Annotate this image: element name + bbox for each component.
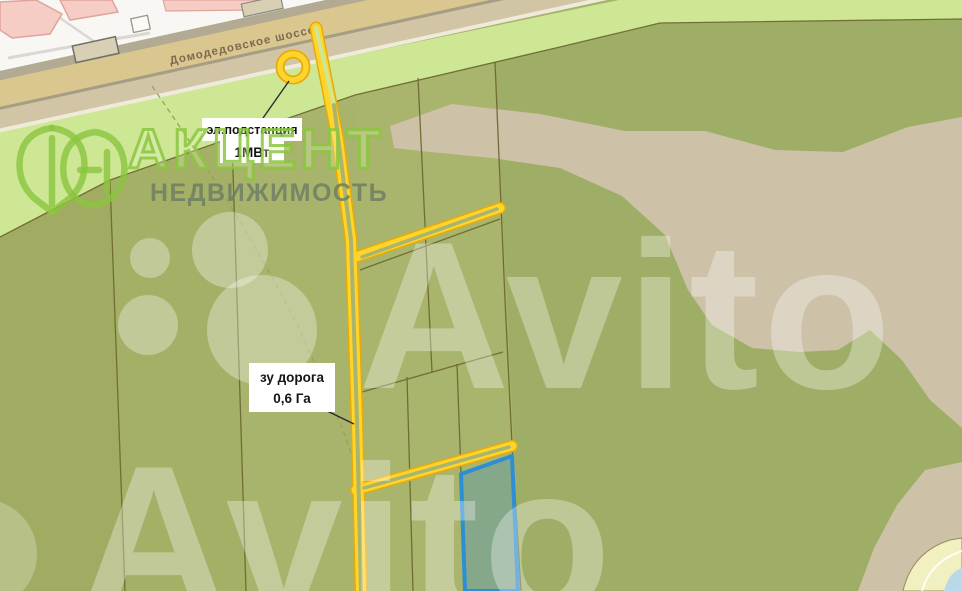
road-plot-label-line1: зу дорога	[260, 370, 325, 385]
map-canvas[interactable]: Домодедовское шоссе	[0, 0, 962, 591]
agency-logo-subtitle: НЕДВИЖИМОСТЬ	[150, 179, 388, 207]
map-screenshot: Домодедовское шоссе	[0, 0, 962, 591]
watermark-text: Avito	[358, 198, 895, 433]
agency-logo-title: АКЦЕНТ	[128, 117, 386, 180]
watermark-circle-3	[118, 295, 178, 355]
road-plot-label: зу дорога 0,6 Га	[249, 363, 335, 412]
road-plot-label-line2: 0,6 Га	[273, 391, 311, 406]
building-small	[131, 15, 151, 32]
watermark-row-2: Avito	[0, 422, 615, 591]
watermark-circle-1	[130, 238, 170, 278]
watermark-text-2: Avito	[78, 422, 615, 591]
